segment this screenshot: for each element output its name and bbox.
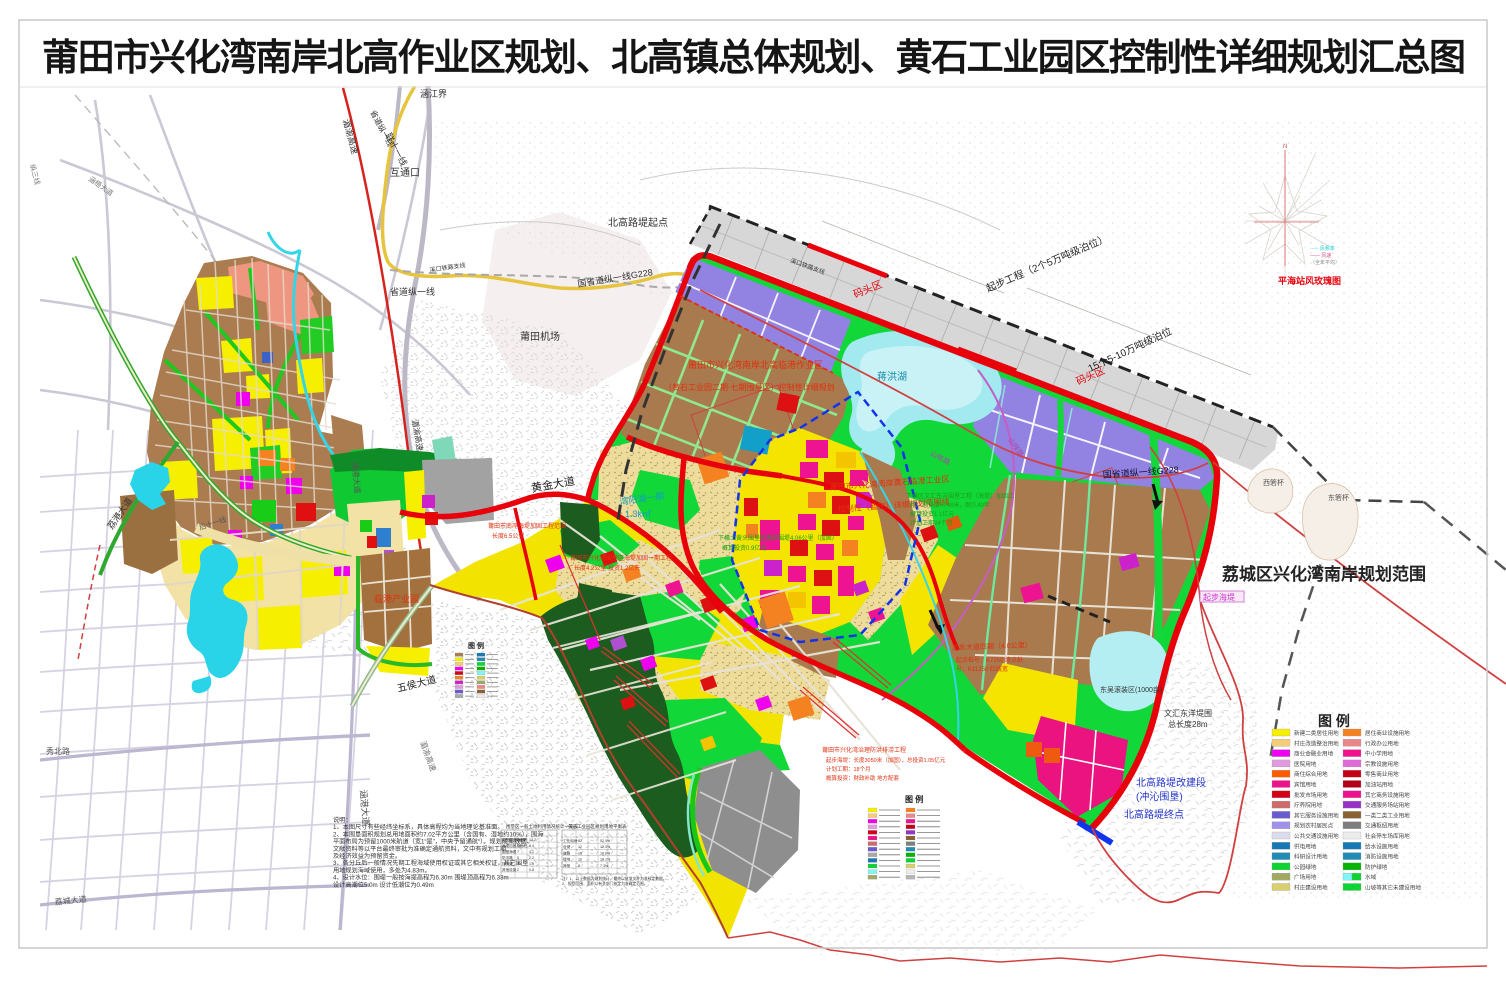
svg-text:村庄建设用地: 村庄建设用地 [1294,884,1328,892]
svg-text:防汛路: 防汛路 [502,855,513,860]
svg-text:山坡等其它未建设用地: 山坡等其它未建设用地 [1365,884,1421,892]
svg-text:北高路堤改建段: 北高路堤改建段 [1136,776,1206,789]
svg-text:长度4.2公里 投资1.2亿元: 长度4.2公里 投资1.2亿元 [574,564,640,572]
svg-text:4.1: 4.1 [529,850,534,854]
svg-text:28: 28 [517,838,521,842]
svg-text:3: 3 [517,862,519,866]
svg-text:其他设施: 其他设施 [502,867,517,872]
svg-text:平海站风玫瑰图: 平海站风玫瑰图 [1278,275,1341,286]
svg-text:概算投资1.1亿元: 概算投资1.1亿元 [910,510,954,518]
svg-text:公园绿地: 公园绿地 [1294,863,1317,871]
svg-text:注：1、以上数据为规划统计，最终以批准文件为准核定数据。: 注：1、以上数据为规划统计，最终以批准文件为准核定数据。 [562,876,667,881]
svg-text:莆田市兴化湾治理防洪排涝工程: 莆田市兴化湾治理防洪排涝工程 [822,746,906,754]
svg-text:排洪渠: 排洪渠 [502,861,513,866]
svg-text:省道纵一线: 省道纵一线 [390,286,435,297]
svg-text:12.3%: 12.3% [600,845,611,849]
svg-text:批发市场用地: 批发市场用地 [1294,791,1328,799]
svg-text:1.5: 1.5 [529,862,534,866]
svg-text:长度6.5公里: 长度6.5公里 [492,532,524,540]
svg-text:仓储: 仓储 [563,844,571,849]
svg-text:莆田机场: 莆田机场 [520,330,560,343]
svg-text:概算投资：财政补助 地方配套: 概算投资：财政补助 地方配套 [826,774,900,782]
svg-text:黄石工业园区规划用地平衡表: 黄石工业园区规划用地平衡表 [568,823,627,830]
svg-text:围垦区造地面积: 围垦区造地面积 [502,837,528,842]
svg-text:东吴滚装区(1000亩): 东吴滚装区(1000亩) [1100,685,1162,694]
svg-text:广场用地: 广场用地 [1294,873,1317,881]
svg-text:村庄改造整治用地: 村庄改造整治用地 [1294,739,1339,747]
svg-text:医院用地: 医院用地 [1294,760,1317,768]
svg-text:规划农村居民点: 规划农村居民点 [1294,822,1334,830]
svg-text:—— 风速: —— 风速 [1310,253,1331,259]
svg-text:其它商务设施用地: 其它商务设施用地 [1365,791,1410,799]
svg-text:程：总长度4748米，耐久48年: 程：总长度4748米，耐久48年 [910,501,990,509]
svg-text:消防设施用地: 消防设施用地 [1365,853,1399,861]
svg-text:给水设施用地: 给水设施用地 [1365,842,1399,850]
svg-text:其它服务设施用地: 其它服务设施用地 [1294,811,1339,819]
svg-text:1、本图尺寸有些经纬坐标系，具体高程均为当地理论基准面。: 1、本图尺寸有些经纬坐标系，具体高程均为当地理论基准面。 [333,823,504,831]
svg-text:总长度28m: 总长度28m [1168,719,1208,729]
svg-text:起步海堤：长度3050米（加固），总投资1.05亿元: 起步海堤：长度3050米（加固），总投资1.05亿元 [826,756,946,764]
svg-text:围垦海堤: 围垦海堤 [502,849,517,854]
svg-text:莆田市兴化湾南岸北高作业区规划、北高镇总体规划、黄石工业园区: 莆田市兴化湾南岸北高作业区规划、北高镇总体规划、黄石工业园区控制性详细规划汇总图 [42,36,1466,78]
svg-text:秀北路: 秀北路 [46,746,70,756]
svg-text:说明：: 说明： [333,816,352,824]
svg-text:号：K11250 红线宽: 号：K11250 红线宽 [956,665,1008,673]
svg-text:水域: 水域 [1365,873,1377,881]
svg-text:8: 8 [578,864,580,868]
svg-text:科研设计用地: 科研设计用地 [1294,853,1328,861]
svg-text:下横区文汇东洋围垦工程（海堤）加固工: 下横区文汇东洋围垦工程（海堤）加固工 [906,492,1014,500]
svg-text:（黄石工业园二期·七期围垦区）控制性详细规划: （黄石工业园二期·七期围垦区）控制性详细规划 [664,382,835,392]
svg-text:N: N [1283,144,1287,150]
svg-text:图 例: 图 例 [1318,713,1350,729]
svg-text:2、规划范围、面积以有关部门核定为准确定范围。: 2、规划范围、面积以有关部门核定为准确定范围。 [562,881,648,886]
svg-text:莆田市兴化湾围垦区海堤加固一期工程: 莆田市兴化湾围垦区海堤加固一期工程 [570,554,672,562]
svg-text:海堤加固总面积: 海堤加固总面积 [502,843,528,848]
svg-text:荔城区兴化湾南岸规划范围: 荔城区兴化湾南岸规划范围 [1221,564,1426,584]
svg-text:绿地: 绿地 [563,857,571,862]
svg-text:12: 12 [578,845,582,849]
svg-text:用地规划海域使用，多处为4.83m。: 用地规划海域使用，多处为4.83m。 [333,866,431,874]
svg-text:18.2%: 18.2% [600,851,611,855]
svg-text:8.4: 8.4 [529,844,534,848]
svg-text:交通枢纽用地: 交通枢纽用地 [1365,822,1399,830]
svg-text:北高路堤终点: 北高路堤终点 [1124,808,1184,821]
svg-text:莆田市兴化湾南岸北高临港作业区: 莆田市兴化湾南岸北高临港作业区 [688,359,823,370]
svg-text:及经济效益为预留资金。: 及经济效益为预留资金。 [333,852,401,860]
svg-text:宗教设施用地: 宗教设施用地 [1365,760,1399,768]
svg-text:下横土黄头围垦区南岸围堤4.06公里（加固）: 下横土黄头围垦区南岸围堤4.06公里（加固） [718,534,838,542]
svg-text:52: 52 [578,839,582,843]
svg-text:图 例: 图 例 [905,794,923,804]
svg-text:宾馆用地: 宾馆用地 [1294,781,1317,789]
svg-text:加油站用地: 加油站用地 [1365,781,1393,789]
svg-text:计划工期：18个月: 计划工期：18个月 [826,765,871,773]
svg-text:交通服务场站用地: 交通服务场站用地 [1365,801,1410,809]
svg-text:新建二类居住用地: 新建二类居住用地 [1294,729,1339,737]
svg-text:工业用地: 工业用地 [563,838,578,843]
svg-text:18: 18 [578,851,582,855]
svg-text:临港产业园: 临港产业园 [374,593,419,604]
svg-text:文献资料等以平台最终审批为准确定通航资料，文中有规划工期: 文献资料等以平台最终审批为准确定通航资料，文中有规划工期 [333,845,506,853]
svg-text:概算投资0.9亿元: 概算投资0.9亿元 [722,544,766,552]
svg-text:起步海堤: 起步海堤 [1203,592,1235,602]
svg-text:商业金融业用地: 商业金融业用地 [1294,750,1334,758]
svg-text:公共交通设施用地: 公共交通设施用地 [1294,832,1339,840]
svg-text:居住商业设施用地: 居住商业设施用地 [1365,729,1410,737]
svg-text:道路: 道路 [563,850,571,855]
svg-text:文汇东洋堤围: 文汇东洋堤围 [1164,708,1212,718]
svg-text:16: 16 [517,844,521,848]
svg-text:10: 10 [578,858,582,862]
svg-text:防护绿地: 防护绿地 [1365,863,1388,871]
svg-text:中小学用地: 中小学用地 [1365,750,1393,758]
svg-text:商住综合用地: 商住综合用地 [1294,770,1328,778]
svg-text:5: 5 [517,856,519,860]
svg-text:莆田市南岸海堤加固工程范围: 莆田市南岸海堤加固工程范围 [488,522,566,530]
svg-text:西箬杯: 西箬杯 [1263,478,1284,487]
svg-text:设计高潮位5.0m 设计低潮位为0.49m: 设计高潮位5.0m 设计低潮位为0.49m [333,881,434,889]
svg-text:·-·-· 风频率: ·-·-· 风频率 [1310,245,1335,252]
svg-text:东箬杯: 东箬杯 [1328,493,1349,502]
svg-text:计划工期24个月: 计划工期24个月 [910,519,953,527]
svg-text:零售商业用地: 零售商业用地 [1365,770,1399,778]
svg-text:社会停车场库用地: 社会停车场库用地 [1365,832,1410,840]
svg-text:1.3k㎡: 1.3k㎡ [625,509,651,519]
svg-text:互通口: 互通口 [390,167,420,179]
svg-text:(冲沁围垦): (冲沁围垦) [1136,790,1183,803]
svg-text:其他: 其他 [563,863,571,868]
svg-text:7.3%: 7.3% [600,864,609,868]
svg-text:涵江界: 涵江界 [420,89,447,99]
svg-text:2.2: 2.2 [529,856,534,860]
svg-text:疗养院用地: 疗养院用地 [1294,801,1322,809]
svg-text:7: 7 [517,850,519,854]
svg-text:供电用地: 供电用地 [1294,842,1317,850]
svg-text:4、设计水位：围堤一般按海提高程为6.30m 围堤顶高程为: 4、设计水位：围堤一般按海提高程为6.30m 围堤顶高程为6.33m [333,874,509,882]
svg-text:52.1%: 52.1% [600,839,611,843]
svg-text:图 例: 图 例 [468,641,484,650]
svg-text:3、各分丘后一般情况先期工程海域使用权证或其它相关权证，其它: 3、各分丘后一般情况先期工程海域使用权证或其它相关权证，其它围垦 [333,859,528,867]
svg-text:2: 2 [517,868,519,872]
svg-text:13.2: 13.2 [529,838,536,842]
svg-text:蒋洪湖: 蒋洪湖 [877,371,907,383]
svg-text:北高路堤起点: 北高路堤起点 [608,216,668,229]
svg-text:行政办公用地: 行政办公用地 [1365,739,1399,747]
svg-text:一类二类工业用地: 一类二类工业用地 [1365,811,1410,819]
svg-text:0.8: 0.8 [529,868,534,872]
svg-text:起点桩号：K7250 终点桩: 起点桩号：K7250 终点桩 [956,656,1023,664]
svg-text:10.1%: 10.1% [600,858,611,862]
svg-text:（全年平均）: （全年平均） [1310,259,1340,266]
